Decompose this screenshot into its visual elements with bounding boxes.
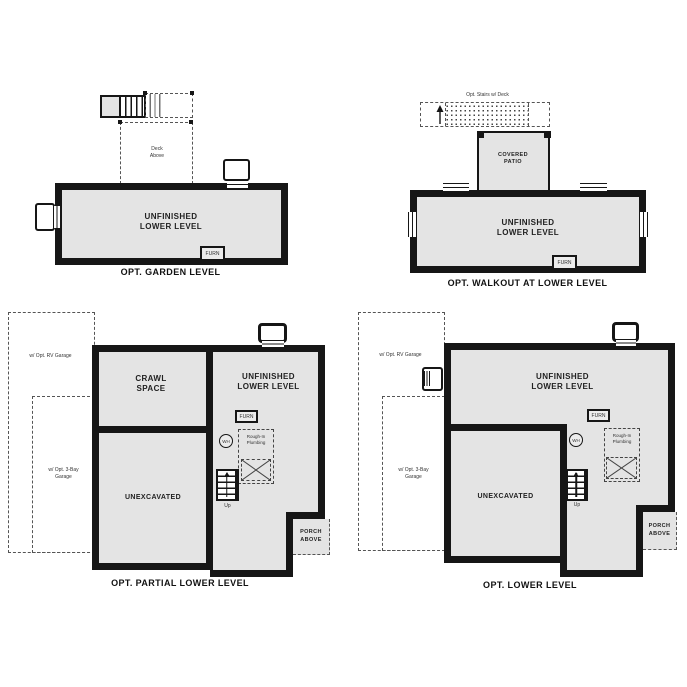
unexcavated-label: UNEXCAVATED	[103, 493, 203, 502]
rough-in-plumbing-label: Rough-In Plumbing	[604, 433, 640, 446]
porch-label: PORCH ABOVE	[649, 523, 671, 537]
water-heater-label: WH	[572, 438, 580, 443]
window	[443, 183, 469, 192]
patio-label: COVERED PATIO	[483, 152, 543, 166]
unexcavated-label: UNEXCAVATED	[453, 492, 558, 501]
deck-outline	[420, 102, 550, 127]
room-label: UNFINISHED LOWER LEVEL	[468, 218, 588, 239]
window	[616, 339, 636, 347]
rv-garage-label: w/ Opt. RV Garage	[8, 353, 93, 360]
deck-above-label: Deck Above	[131, 146, 183, 160]
furnace-label: FURN	[240, 414, 254, 420]
crawl-space-label: CRAWL SPACE	[101, 374, 201, 395]
furnace-label: FURN	[558, 260, 572, 266]
stairs-up	[216, 469, 239, 501]
plan-caption: OPT. GARDEN LEVEL	[68, 267, 273, 277]
furnace-label: FURN	[592, 413, 606, 419]
shower-rough-in	[606, 457, 637, 479]
corner-tick	[190, 91, 194, 95]
window	[408, 212, 417, 237]
deck-divider	[528, 103, 529, 126]
porch-above: PORCH ABOVE	[643, 512, 677, 550]
window	[227, 180, 248, 189]
water-heater: WH	[569, 433, 583, 447]
deck-label: Opt. Stairs w/ Deck	[440, 92, 535, 99]
chimney-cap	[620, 322, 631, 325]
furnace-label: FURN	[206, 251, 220, 257]
window-well	[223, 159, 250, 181]
window-well	[35, 203, 55, 231]
plan-caption: OPT. LOWER LEVEL	[425, 580, 635, 590]
porch-label: PORCH ABOVE	[300, 529, 322, 543]
rough-in-plumbing-label: Rough-In Plumbing	[238, 434, 274, 447]
up-label: Up	[566, 502, 588, 509]
rv-garage-label: w/ Opt. RV Garage	[358, 352, 443, 359]
patio-corner-post	[477, 131, 484, 138]
furnace-box: FURN	[552, 255, 577, 270]
room-label: UNFINISHED LOWER LEVEL	[500, 372, 625, 393]
stair-arrow-head	[224, 472, 230, 477]
stair-dashed-treads	[146, 94, 164, 117]
deck-stair-arrow	[433, 105, 447, 125]
corner-tick	[118, 120, 122, 124]
corner-tick	[189, 120, 193, 124]
window	[262, 340, 284, 348]
furnace-box: FURN	[200, 246, 225, 261]
patio-corner-post	[544, 131, 551, 138]
chimney-cap	[267, 323, 278, 326]
water-heater-label: WH	[222, 439, 230, 444]
furnace-box: FURN	[587, 409, 610, 422]
window	[580, 183, 607, 192]
bay-garage-label: w/ Opt. 3-Bay Garage	[382, 467, 445, 481]
up-label: Up	[216, 503, 239, 510]
window	[639, 212, 648, 237]
plan-caption: OPT. WALKOUT AT LOWER LEVEL	[405, 278, 650, 288]
stairs-up	[566, 469, 588, 501]
plan-caption: OPT. PARTIAL LOWER LEVEL	[55, 578, 305, 588]
window	[424, 371, 430, 386]
deck-boards	[445, 104, 529, 125]
stair-arrow-head	[573, 472, 579, 477]
porch-above: PORCH ABOVE	[293, 519, 330, 555]
water-heater: WH	[219, 434, 233, 448]
stair-treads	[119, 95, 146, 118]
furnace-box: FURN	[235, 410, 258, 423]
stair-dashed-outline	[145, 93, 193, 118]
room-label: UNFINISHED LOWER LEVEL	[111, 212, 231, 233]
window	[53, 206, 61, 228]
shower-rough-in	[241, 459, 271, 481]
corner-tick	[143, 91, 147, 95]
room-label: UNFINISHED LOWER LEVEL	[216, 372, 321, 393]
floorplan-sheet: Deck Above UNFINISHED LOWER LEVEL FURN O…	[0, 0, 687, 687]
